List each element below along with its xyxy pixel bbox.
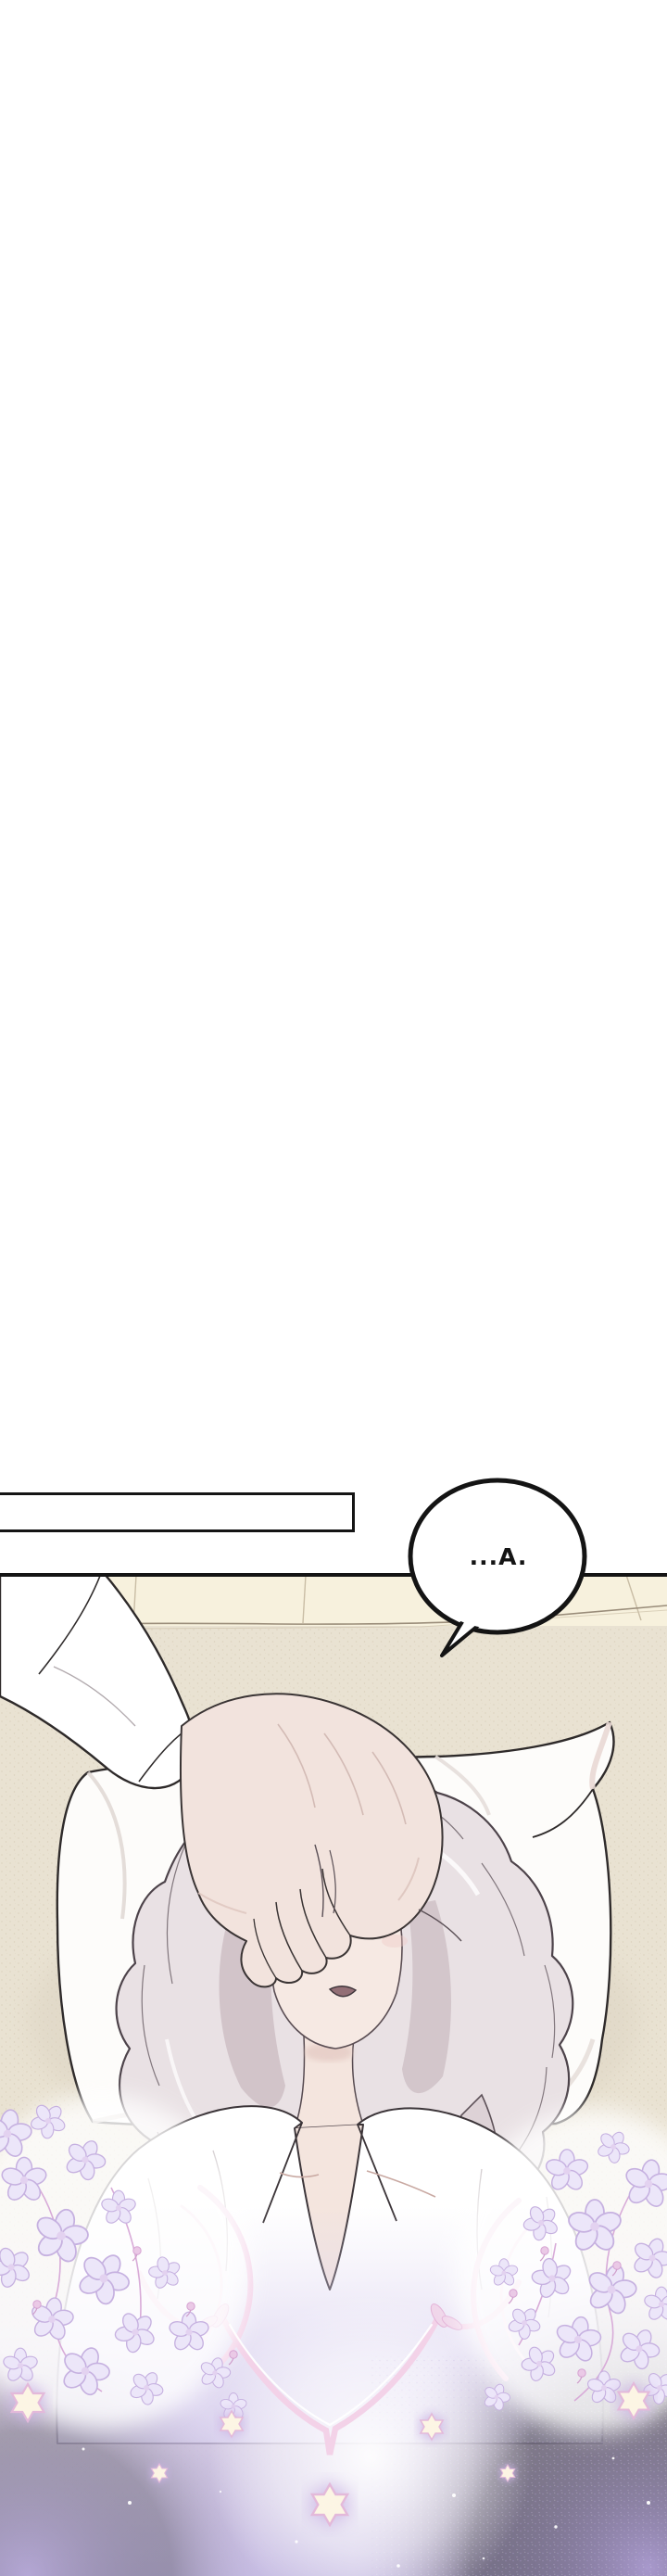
speech-bubble-text: ...A.	[410, 1480, 586, 1633]
blank-margin	[0, 0, 667, 1573]
manga-page: ...A.	[0, 0, 667, 2576]
manga-panel-artwork	[0, 0, 667, 2576]
narration-box	[0, 1492, 355, 1532]
